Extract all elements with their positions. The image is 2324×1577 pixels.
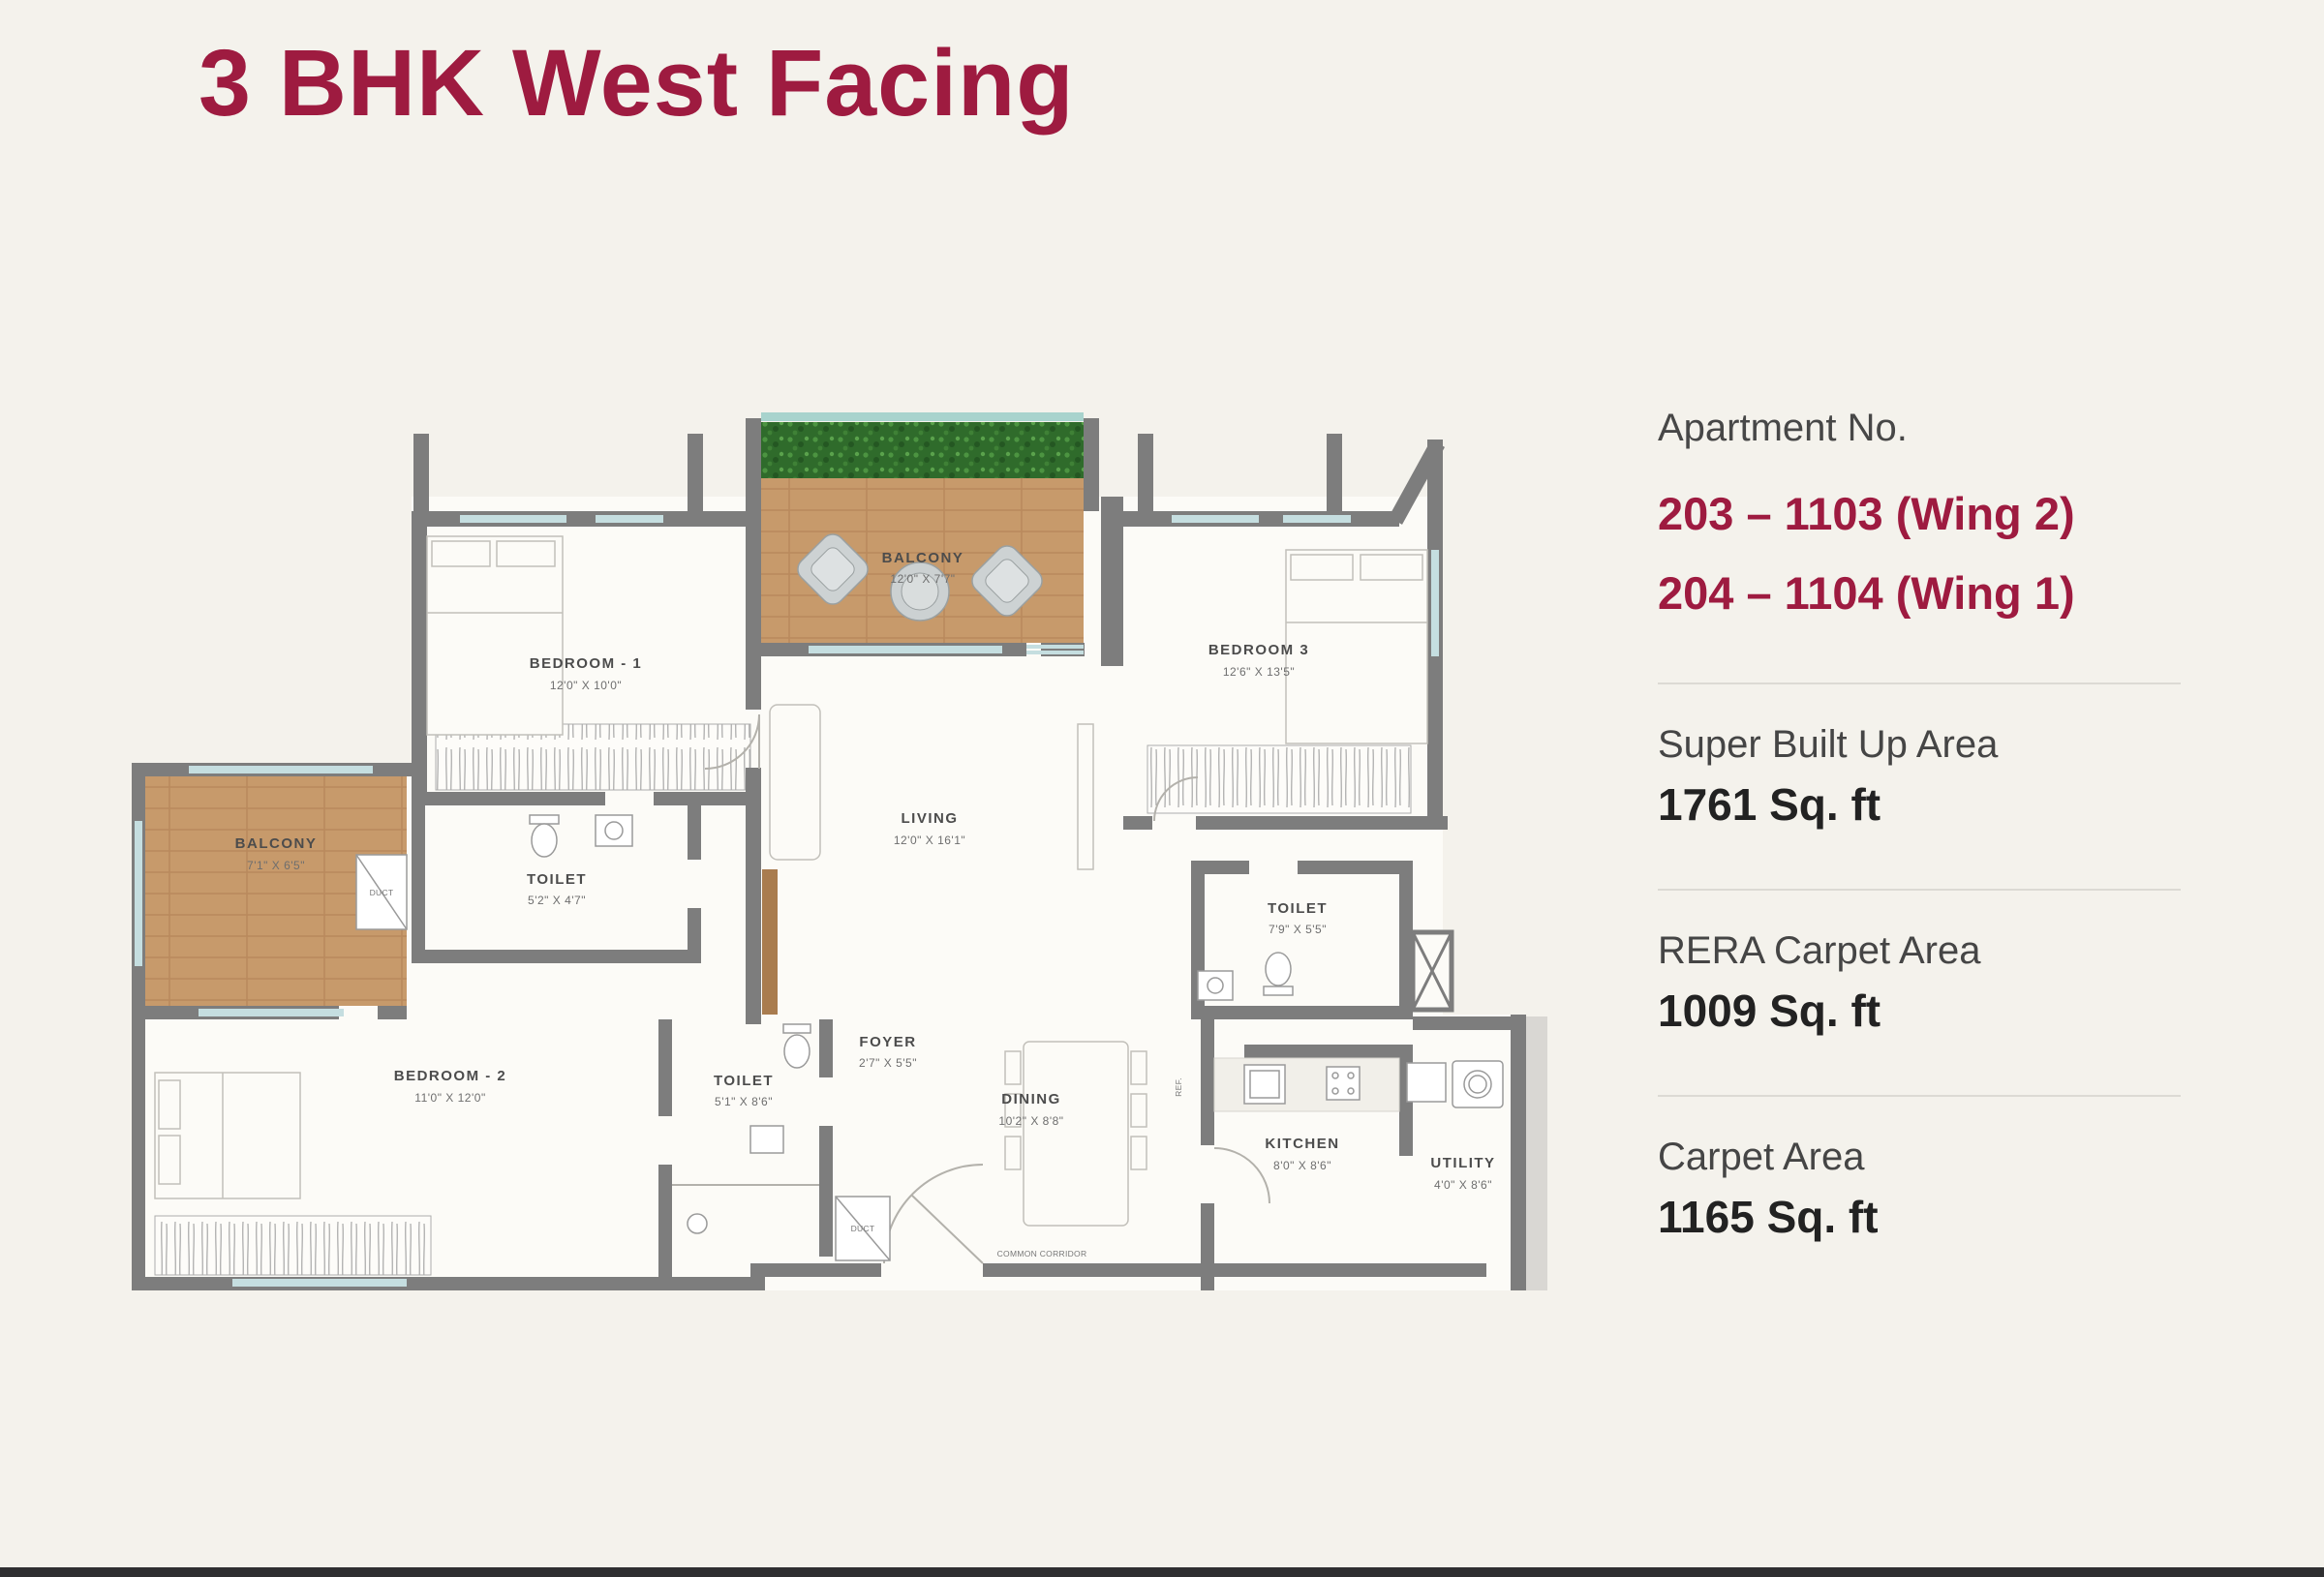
room-label: BALCONY [235, 835, 318, 852]
fridge-label: REF. [1174, 1077, 1183, 1097]
room-label: BEDROOM 3 [1208, 642, 1309, 658]
divider [1658, 682, 2181, 684]
divider [1658, 1095, 2181, 1097]
rera-carpet-area-label: RERA Carpet Area [1658, 929, 2208, 973]
room-dims: 10'2" X 8'8" [998, 1114, 1063, 1128]
exterior-strip [1526, 1016, 1547, 1290]
room-dims: 2'7" X 5'5" [859, 1056, 917, 1070]
duct-balcony-label: DUCT [370, 888, 394, 897]
info-panel: Apartment No. 203 – 1103 (Wing 2) 204 – … [1658, 407, 2208, 1243]
room-label: LIVING [901, 810, 958, 827]
room-label: TOILET [527, 871, 587, 888]
room-dims: 5'1" X 8'6" [715, 1095, 773, 1108]
apartment-no-label: Apartment No. [1658, 407, 2208, 450]
carpet-area-label: Carpet Area [1658, 1136, 2208, 1179]
room-label: BEDROOM - 1 [530, 655, 643, 672]
duct-entry-label: DUCT [851, 1224, 875, 1233]
room-dims: 8'0" X 8'6" [1273, 1159, 1331, 1172]
room-label: FOYER [859, 1034, 916, 1050]
room-label: TOILET [1268, 900, 1328, 917]
bottom-bar [0, 1567, 2324, 1577]
room-label: DINING [1001, 1091, 1061, 1107]
room-dims: 4'0" X 8'6" [1434, 1178, 1492, 1192]
carpet-area-value: 1165 Sq. ft [1658, 1191, 2208, 1243]
floor-plan-drawing: BEDROOM - 1 12'0" X 10'0" BALCONY 12'0" … [131, 405, 1549, 1313]
apartment-numbers: 203 – 1103 (Wing 2) 204 – 1104 (Wing 1) [1658, 483, 2208, 624]
room-dims: 12'0" X 10'0" [550, 679, 622, 692]
room-dims: 7'9" X 5'5" [1269, 923, 1327, 936]
room-dims: 12'0" X 7'7" [890, 572, 955, 586]
room-dims: 5'2" X 4'7" [528, 894, 586, 907]
hedge-planter [761, 422, 1084, 478]
balcony-rail-glass [761, 412, 1084, 421]
room-dims: 12'0" X 16'1" [894, 834, 965, 847]
room-label: TOILET [714, 1073, 774, 1089]
floor-plan: BEDROOM - 1 12'0" X 10'0" BALCONY 12'0" … [131, 405, 1549, 1313]
room-dims: 7'1" X 6'5" [247, 859, 305, 872]
super-built-up-area-label: Super Built Up Area [1658, 723, 2208, 767]
divider [1658, 889, 2181, 891]
room-label: BEDROOM - 2 [394, 1068, 507, 1084]
room-label: UTILITY [1430, 1155, 1495, 1171]
rera-carpet-area-value: 1009 Sq. ft [1658, 985, 2208, 1037]
room-dims: 12'6" X 13'5" [1223, 665, 1295, 679]
room-dims: 11'0" X 12'0" [414, 1091, 485, 1105]
room-label: BALCONY [882, 550, 964, 566]
apartment-number-wing1: 204 – 1104 (Wing 1) [1658, 562, 2208, 624]
slide: 3 BHK West Facing [0, 0, 2324, 1577]
corridor-label: COMMON CORRIDOR [997, 1249, 1087, 1259]
page-title: 3 BHK West Facing [199, 29, 1075, 137]
room-label: KITCHEN [1265, 1136, 1339, 1152]
apartment-number-wing2: 203 – 1103 (Wing 2) [1658, 483, 2208, 545]
super-built-up-area-value: 1761 Sq. ft [1658, 778, 2208, 831]
